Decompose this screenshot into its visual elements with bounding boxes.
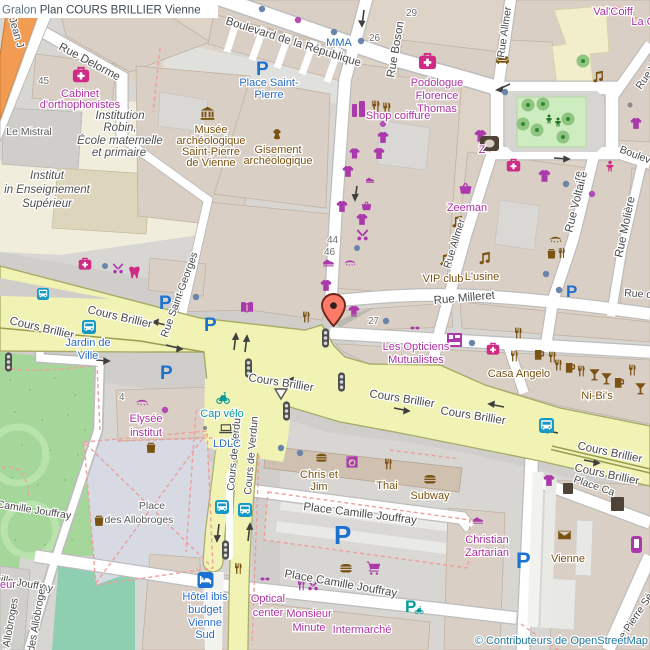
svg-text:4: 4 bbox=[119, 392, 125, 403]
svg-text:Institution: Institution bbox=[95, 110, 144, 122]
svg-text:Val'Coiff: Val'Coiff bbox=[593, 6, 634, 18]
svg-text:29: 29 bbox=[406, 8, 418, 19]
svg-text:Jardin de: Jardin de bbox=[65, 337, 110, 349]
svg-text:Place: Place bbox=[139, 500, 165, 512]
svg-text:P: P bbox=[160, 363, 173, 384]
svg-text:Elysée: Elysée bbox=[129, 413, 162, 425]
svg-text:P: P bbox=[566, 282, 577, 301]
svg-text:Christian: Christian bbox=[465, 534, 508, 546]
svg-text:45: 45 bbox=[38, 76, 50, 87]
svg-text:Supérieur: Supérieur bbox=[22, 198, 73, 210]
svg-text:Vienne: Vienne bbox=[188, 617, 222, 629]
svg-text:archéologique: archéologique bbox=[243, 155, 312, 167]
svg-text:Rue d: Rue d bbox=[624, 287, 650, 301]
svg-text:Thai: Thai bbox=[376, 480, 397, 492]
svg-text:budget: budget bbox=[188, 604, 222, 616]
svg-text:Subway: Subway bbox=[410, 490, 450, 502]
svg-text:Pierre: Pierre bbox=[254, 89, 283, 101]
svg-text:44: 44 bbox=[327, 235, 339, 246]
svg-text:Institut: Institut bbox=[30, 170, 65, 182]
svg-text:La C: La C bbox=[631, 16, 650, 28]
svg-text:Z: Z bbox=[479, 144, 486, 156]
svg-text:eur: eur bbox=[0, 579, 16, 591]
svg-text:Podologue: Podologue bbox=[411, 77, 464, 89]
svg-text:Cap vélo: Cap vélo bbox=[200, 408, 243, 420]
svg-text:Sud: Sud bbox=[195, 629, 215, 641]
svg-text:P: P bbox=[516, 548, 531, 573]
svg-text:Ville: Ville bbox=[78, 350, 99, 362]
svg-text:P: P bbox=[405, 597, 416, 616]
svg-text:et primaire: et primaire bbox=[92, 147, 146, 159]
svg-text:27: 27 bbox=[368, 316, 380, 327]
svg-text:P: P bbox=[204, 315, 217, 336]
svg-text:L'usine: L'usine bbox=[465, 271, 500, 283]
svg-text:institut: institut bbox=[130, 427, 162, 439]
svg-text:Florence: Florence bbox=[416, 90, 459, 102]
svg-text:Zartarian: Zartarian bbox=[465, 547, 509, 559]
svg-text:Mutualistes: Mutualistes bbox=[388, 354, 444, 366]
svg-text:LDLC: LDLC bbox=[213, 438, 241, 450]
svg-text:Monsieur: Monsieur bbox=[286, 608, 332, 620]
svg-text:Optical: Optical bbox=[251, 593, 285, 605]
svg-text:Shop coiffure: Shop coiffure bbox=[366, 110, 431, 122]
svg-text:Casa Angelo: Casa Angelo bbox=[488, 368, 550, 380]
svg-text:Gralon Plan COURS BRILLIER Vie: Gralon Plan COURS BRILLIER Vienne bbox=[2, 5, 201, 17]
svg-text:P: P bbox=[334, 520, 351, 550]
svg-text:Ni-Bi's: Ni-Bi's bbox=[581, 390, 613, 402]
svg-text:26: 26 bbox=[369, 33, 381, 44]
svg-text:in Enseignement: in Enseignement bbox=[4, 184, 90, 196]
svg-text:Intermarché: Intermarché bbox=[333, 624, 392, 636]
svg-text:des Allobroges: des Allobroges bbox=[105, 514, 174, 526]
svg-text:Zeeman: Zeeman bbox=[447, 202, 487, 214]
svg-text:Les Opticiens: Les Opticiens bbox=[383, 341, 450, 353]
svg-text:Place Saint-: Place Saint- bbox=[239, 77, 299, 89]
svg-text:MMA: MMA bbox=[326, 37, 352, 49]
svg-text:Vienne: Vienne bbox=[551, 553, 585, 565]
svg-text:École maternelle: École maternelle bbox=[77, 134, 163, 147]
svg-text:de Vienne: de Vienne bbox=[186, 157, 235, 169]
svg-text:Minute: Minute bbox=[292, 622, 325, 634]
svg-text:VIP club: VIP club bbox=[423, 273, 464, 285]
svg-text:© Contributeurs de OpenStreetM: © Contributeurs de OpenStreetMap bbox=[475, 635, 648, 647]
svg-text:center: center bbox=[253, 607, 284, 619]
svg-text:Jim: Jim bbox=[310, 481, 327, 493]
svg-text:Le Mistral: Le Mistral bbox=[6, 126, 52, 138]
svg-text:Robin,: Robin, bbox=[103, 122, 136, 134]
svg-text:46: 46 bbox=[324, 247, 336, 258]
svg-text:Chris et: Chris et bbox=[300, 469, 338, 481]
svg-text:Hôtel ibis: Hôtel ibis bbox=[182, 591, 228, 603]
